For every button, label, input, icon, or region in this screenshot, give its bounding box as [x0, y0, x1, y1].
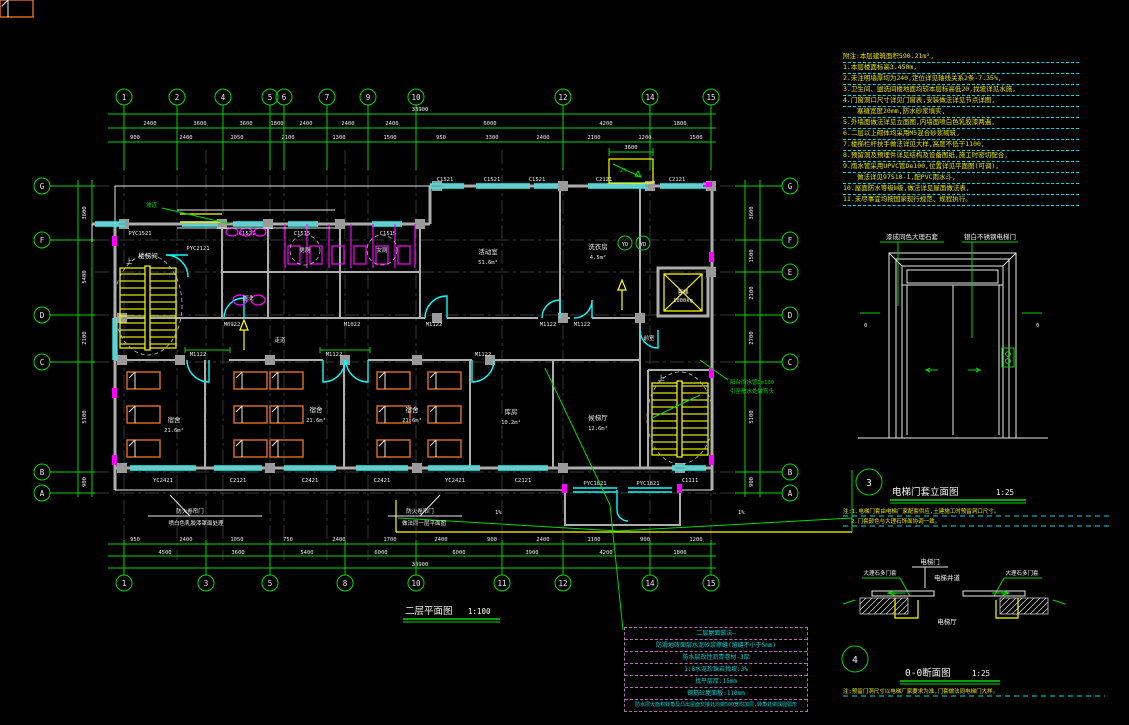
grid-bubble: 4	[221, 93, 226, 102]
dim: 4200	[599, 550, 612, 556]
dim: 6000	[483, 121, 496, 127]
rain-note: 引至散水处做弯头	[730, 387, 775, 395]
dim-total-bottom: 33900	[412, 562, 429, 568]
grid-bubble: 8	[343, 579, 348, 588]
dim: 1100	[587, 537, 600, 543]
dim: 900	[640, 537, 650, 543]
dim: 1800	[673, 550, 686, 556]
dim: 5100	[749, 410, 755, 423]
main-title: 二层平面图 1:100	[403, 606, 500, 622]
general-notes: 附注:本层建筑面积590.21m², 1.本层楼面标高3.450m, 2.未注明…	[843, 52, 1079, 206]
note-line: 3.卫生间、盥洗间楼地面均较本层标高低20,找坡详见水施,	[843, 85, 1079, 96]
dim: 4500	[158, 550, 171, 556]
grid-bubble: A	[40, 489, 45, 498]
elevation-zero: 0	[864, 323, 867, 329]
room-area: 4.5m²	[590, 254, 607, 261]
dim: 2100	[749, 286, 755, 299]
dim: 2400	[179, 537, 192, 543]
detail-title: 0-0断面图	[905, 667, 951, 679]
door-label: M1122	[475, 352, 492, 358]
slope-label: 1%	[495, 510, 502, 516]
roof-table-leader	[545, 368, 623, 630]
grid-bubble: 6	[282, 93, 287, 102]
dim: 1300	[332, 135, 345, 141]
room-label: 前室	[643, 334, 655, 342]
grid-bubble: 3	[204, 579, 209, 588]
dim: 2400	[385, 121, 398, 127]
dim: 5400	[82, 270, 88, 283]
elevator-label: 客梯	[677, 288, 689, 296]
grid-bubble: A	[788, 489, 793, 498]
note-line: 10.屋面防水等级Ⅱ级,做法详见屋面做法表,	[843, 184, 1079, 195]
roof-table-row: 防水层大面积转角及凸出屋面交接处均做500宽附加层,转角处做成圆弧形	[625, 700, 807, 711]
dim: 1050	[230, 135, 243, 141]
door-label: M1122	[540, 322, 557, 328]
window-label: PYC1821	[583, 481, 606, 487]
room-label: 楼梯间	[138, 251, 158, 260]
grid-bubble: C	[788, 358, 793, 367]
detail4-section: 电梯门 电梯井道 大理石多门套 大理石多门套 电梯厅 4 0-0断面图 1:25…	[842, 557, 1105, 696]
window-label: PYC1521	[128, 231, 151, 237]
dim: 1500	[383, 135, 396, 141]
room-label: 候梯厅	[588, 413, 608, 422]
detail-title: 电梯门套立面图	[892, 486, 959, 498]
window-label: C1111	[682, 478, 699, 484]
section-label: 大理石多门套	[863, 569, 897, 577]
room-label: 宿舍	[310, 405, 324, 414]
grid-top: 1 2 4 5 6 7 9 10 12 14 15 33900 2400 360…	[108, 89, 719, 170]
plan-scale: 1:100	[468, 607, 491, 616]
stair-direction: 上	[658, 373, 665, 382]
canopy: 3600 2%	[609, 145, 653, 183]
grid-bubble: C	[40, 358, 45, 367]
bed	[234, 440, 267, 457]
grid-bubble: 1	[122, 93, 127, 102]
note-line: 11.未尽事宜均按国家现行规范、规程执行。	[843, 195, 1079, 206]
dim: 2400	[434, 537, 447, 543]
dim: 3600	[231, 550, 244, 556]
elevation-zero: 0	[1036, 323, 1039, 329]
slope-label: 2%	[620, 168, 627, 174]
slope-label: 1%	[738, 510, 745, 516]
window-label: C2421	[302, 478, 319, 484]
window-label: PYC1821	[636, 481, 659, 487]
room-label: 男厕	[299, 247, 311, 254]
dim: 900	[487, 537, 497, 543]
dim: 900	[130, 135, 140, 141]
door-label: M1122	[574, 322, 591, 328]
grid-left: G F D C B A 3600 5400 2100 5100 900	[34, 178, 95, 501]
dim: 5100	[82, 410, 88, 423]
door-label: M0922	[224, 322, 241, 328]
note-line: 8.预留洞及预埋件详见结构及设备图纸,施工时密切配合,	[843, 151, 1079, 162]
note-line: 1.本层楼面标高3.450m,	[843, 63, 1079, 74]
door-label: M1122	[326, 352, 343, 358]
grid-bubble: 5	[268, 579, 273, 588]
bed	[270, 406, 303, 423]
bed	[428, 440, 461, 457]
room-area: 51.6m²	[478, 259, 498, 266]
ramp-label: 坡道	[146, 201, 158, 209]
roof-construction-table: 二层屋面做法— 防滑地砖面层水泥砂浆擦缝(留缝不小于5mm) 防水层改性沥青卷材…	[624, 627, 808, 712]
dim: 3600	[193, 121, 206, 127]
note-line: 塞缝宽度20mm,防水砂浆填实,	[843, 107, 1079, 118]
grid-bubble: 9	[366, 93, 371, 102]
bed	[270, 372, 303, 389]
note-line: 附注:本层建筑面积590.21m²,	[843, 52, 1079, 63]
room-label: 库房	[505, 407, 518, 416]
window-label: C1521	[484, 177, 501, 183]
stair-direction: 上	[126, 256, 133, 265]
dim: 900	[749, 477, 755, 487]
dim: 950	[436, 135, 446, 141]
grid-bubble: G	[40, 182, 45, 191]
bed-proto	[0, 0, 33, 17]
dim: 2400	[179, 135, 192, 141]
detail-scale: 1:25	[996, 488, 1014, 497]
dim-total-top: 33900	[412, 107, 429, 113]
leader-note: 做法同一层平面图	[402, 519, 447, 527]
roof-table-row: 找平层厚:15mm	[625, 676, 807, 688]
grid-bubble: 10	[411, 579, 421, 588]
grid-bubble: 2	[175, 93, 180, 102]
door-label: M1122	[426, 322, 443, 328]
dim: 2100	[587, 135, 600, 141]
room-label: 宿舍	[406, 405, 420, 414]
dim: 3900	[525, 550, 538, 556]
dim: 900	[82, 477, 88, 487]
dim: 2400	[332, 537, 345, 543]
bed	[127, 440, 160, 457]
room-label: 盥洗	[242, 294, 254, 302]
note-line: 9.雨水管采用UPVC管De100,位置详见平面图(可调),	[843, 162, 1079, 173]
note-line: 做法详见97S10-1,配PVC雨水斗,	[843, 173, 1079, 184]
grid-bubble: B	[788, 468, 793, 477]
grid-bubble: F	[40, 236, 45, 245]
grid-bubble: 5	[268, 93, 273, 102]
drain-label: YD	[640, 242, 647, 248]
roof-table-row: 防滑地砖面层水泥砂浆擦缝(留缝不小于5mm)	[625, 640, 807, 652]
dim: 2100	[281, 135, 294, 141]
room-area: 10.2m²	[501, 419, 521, 426]
dim: 1200	[689, 537, 702, 543]
room-label: 活动室	[478, 247, 498, 256]
grid-bubble: 1	[122, 579, 127, 588]
dim: 1050	[230, 537, 243, 543]
grid-bubble: G	[788, 182, 793, 191]
grid-bubble: D	[788, 311, 793, 320]
grid-bubble: 15	[706, 579, 715, 588]
grid-bubble: B	[40, 468, 45, 477]
window-label: YC2421	[153, 478, 173, 484]
window-label: C1521	[529, 177, 546, 183]
note-line: 7.楼梯栏杆扶手做法详见大样,高度不低于1100,	[843, 140, 1079, 151]
material-label: 漆成同色大理石套	[886, 232, 939, 241]
cad-sheet: 1 2 4 5 6 7 9 10 12 14 15 33900 2400 360…	[0, 0, 1129, 725]
detail-number: 4	[852, 655, 858, 666]
section-label: 大理石多门套	[1005, 569, 1039, 577]
dim: 2400	[536, 135, 549, 141]
note-line: 4.门窗洞口尺寸详见门窗表,安装做法详见节点详图,	[843, 96, 1079, 107]
dim: 2400	[299, 121, 312, 127]
dim: 3300	[485, 135, 498, 141]
leader-note: 防火卷帘门	[176, 507, 204, 515]
grid-right: G F E D C B A 3600 1500 2100 2700 5100 9…	[735, 178, 798, 501]
windows	[95, 184, 706, 492]
grid-bubble: D	[40, 311, 45, 320]
window-label: C2121	[596, 177, 613, 183]
window-label: C1521	[437, 177, 454, 183]
dim: 1800	[270, 121, 283, 127]
window-label: C2121	[515, 478, 532, 484]
window-label: YC2421	[445, 478, 465, 484]
bed	[234, 406, 267, 423]
bed	[377, 440, 410, 457]
leader-note: 喷白色乳胶漆罩面处理	[168, 519, 224, 527]
note-line: 2.未注明墙厚均为240,定位详见轴线关系2条-7.35%,	[843, 74, 1079, 85]
leader-note: 防火卷帘门	[406, 507, 434, 515]
grid-bubble: 10	[411, 93, 421, 102]
room-label: 女厕	[376, 246, 388, 254]
bed	[127, 372, 160, 389]
roof-table-row: 钢筋砼屋面板:110mm	[625, 688, 807, 700]
dim: 3600	[624, 145, 637, 151]
dim: 3600	[749, 206, 755, 219]
room-area: 12.6m²	[588, 425, 608, 432]
grid-bubble: 11	[497, 579, 506, 588]
grid-bubble: 15	[706, 93, 715, 102]
room-area: 21.6m²	[164, 427, 184, 434]
dim: 1500	[749, 249, 755, 262]
grid-bubble: F	[788, 236, 793, 245]
wall-accents	[112, 182, 714, 493]
detail3-elevation: 0 0 漆成同色大理石套 银白不锈钢电梯门 3 电梯门套立面图 1:25 注:1…	[843, 232, 1113, 526]
detail-number: 3	[866, 478, 872, 489]
plan-title: 二层平面图	[405, 606, 453, 617]
bed	[127, 406, 160, 423]
dim: 2700	[749, 331, 755, 344]
material-label: 银白不锈钢电梯门	[964, 232, 1016, 241]
room-label: 宿舍	[168, 415, 182, 424]
bed	[377, 372, 410, 389]
grid-bottom: 1 3 5 8 10 11 12 14 15 950 2400 1050 750…	[108, 537, 719, 591]
grid-bubble: 12	[558, 579, 567, 588]
room-area: 21.6m²	[306, 417, 326, 424]
detail-note: 2.门套颜色与大理石饰面协调一致。	[851, 517, 940, 525]
dim: 1500	[689, 135, 702, 141]
dim: 1700	[383, 537, 396, 543]
window-label: C2121	[669, 177, 686, 183]
rain-note: 阳台雨水管De100	[730, 378, 774, 386]
note-line: 5.外墙面做法详见立面图,内墙面喷白色乳胶漆两遍,	[843, 118, 1079, 129]
window-label: PYC2121	[186, 246, 209, 252]
grid-bubble: 7	[325, 93, 330, 102]
grid-bubble: E	[788, 268, 793, 277]
window-label: C2121	[230, 478, 247, 484]
detail-note: 注:预留门洞尺寸以电梯厂家要求为准,门套做法同电梯门大样。	[843, 687, 998, 695]
dim: 3600	[82, 206, 88, 219]
dim: 2400	[143, 121, 156, 127]
dim: 1800	[673, 121, 686, 127]
dim: 950	[130, 537, 140, 543]
dim: 5400	[300, 550, 313, 556]
dim: 750	[283, 537, 293, 543]
section-label: 电梯门	[920, 557, 940, 566]
roof-table-row: 防水层改性沥青卷材-3厚	[625, 652, 807, 664]
door-label: M1122	[190, 352, 207, 358]
room-area: 21.6m²	[402, 417, 422, 424]
dim: 6000	[374, 550, 387, 556]
dim: 6000	[452, 550, 465, 556]
grid-bubble: 14	[645, 93, 655, 102]
dim: 2400	[536, 537, 549, 543]
window-label: C1515	[380, 231, 397, 237]
grid-bubble: 12	[558, 93, 567, 102]
section-label: 电梯井道	[934, 573, 961, 582]
grid-bubble: 14	[645, 579, 655, 588]
elevator-load: 1000kg	[673, 298, 693, 304]
detail-note: 注:1.电梯门套由电梯厂家配套供应,土建施工时预留洞口尺寸。	[843, 507, 999, 515]
window-label: C2421	[374, 478, 391, 484]
roof-table-row: 二层屋面做法—	[625, 628, 807, 640]
bed	[428, 372, 461, 389]
roof-table-row: 1:8水泥珍珠岩找坡:3%	[625, 664, 807, 676]
dim: 2400	[341, 121, 354, 127]
section-label: 电梯厅	[937, 617, 957, 626]
bed	[428, 406, 461, 423]
room-label: 洗衣房	[588, 242, 608, 251]
bed	[270, 440, 303, 457]
window-label: C1515	[294, 231, 311, 237]
drain-label: YD	[622, 242, 629, 248]
note-line: 6.二层以上砌体均采用M5混合砂浆砌筑,	[843, 129, 1079, 140]
dim: 3600	[239, 121, 252, 127]
dim: 4200	[599, 121, 612, 127]
door-label: M1022	[344, 322, 361, 328]
bed	[234, 372, 267, 389]
dim: 2100	[82, 331, 88, 344]
room-label: 走道	[274, 336, 286, 344]
detail-scale: 1:25	[972, 669, 990, 678]
